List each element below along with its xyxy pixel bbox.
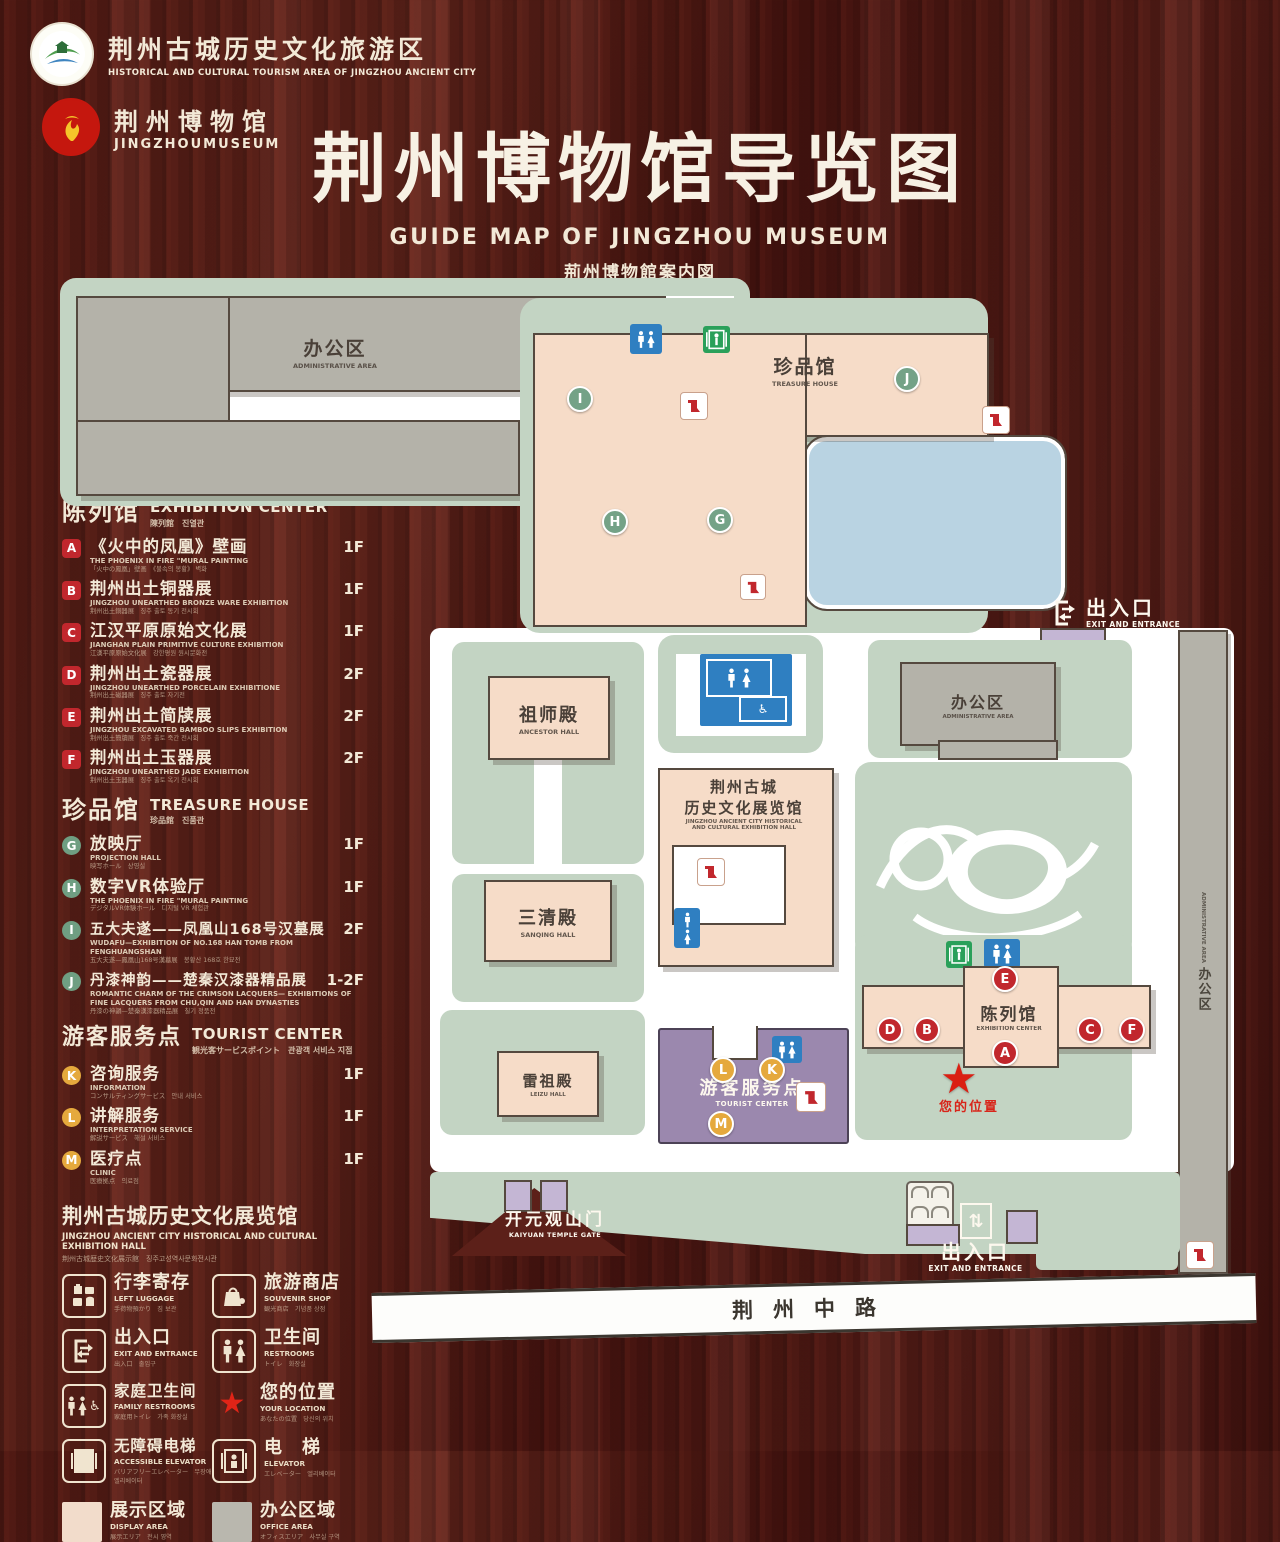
item-sub: デジタルVR体験ホール 디지털 VR 체험관	[90, 905, 364, 913]
admin-area-nw-label: 办公区 ADMINISTRATIVE AREA	[240, 334, 430, 370]
picto-zh: 办公区域	[260, 1502, 340, 1520]
item-zh: 荆州出土简牍展	[90, 707, 213, 724]
legend-item-body: 数字VR体验厅1F THE PHOENIX IN FIRE "MURAL PAI…	[90, 878, 364, 913]
picto-en: EXIT AND ENTRANCE	[114, 1349, 198, 1358]
legend-hall-heading: 荆州古城历史文化展览馆 JINGZHOU ANCIENT CITY HISTOR…	[62, 1199, 364, 1264]
picto-text: 行李寄存 LEFT LUGGAGE 手荷物預かり 짐 보관	[114, 1274, 190, 1313]
page-title: 荆州博物馆导览图	[250, 108, 1030, 217]
elevator-icon-treasure	[703, 326, 730, 353]
section-title-zh: 游客服务点	[62, 1027, 182, 1049]
item-en: THE PHOENIX IN FIRE "MURAL PAINTING	[90, 557, 364, 566]
picto-sub: 観光商店 기념품 상점	[264, 1304, 340, 1313]
garden-art	[855, 762, 1132, 958]
legend-item-body: 讲解服务1F INTERPRETATION SERVICE 解説サービス 해설 …	[90, 1107, 364, 1142]
picto-zh: 电 梯	[264, 1439, 336, 1457]
label-en: ANCESTOR HALL	[519, 728, 579, 736]
item-zh: 丹漆神韵——楚秦汉漆器精品展	[90, 974, 307, 989]
legend-item-j: J 丹漆神韵——楚秦汉漆器精品展1-2F ROMANTIC CHARM OF T…	[62, 971, 364, 1015]
picto-zh: 出入口	[114, 1329, 198, 1347]
legend-item-body: 江汉平原原始文化展1F JIANGHAN PLAIN PRIMITIVE CUL…	[90, 622, 364, 657]
location-star-icon: ★	[212, 1384, 252, 1424]
restroom-icon-exhibition-hall	[674, 908, 700, 948]
path-vertical-1	[534, 753, 562, 878]
picto-en: SOUVENIR SHOP	[264, 1294, 340, 1303]
item-zh: 数字VR体验厅	[90, 878, 205, 895]
arch-shape	[931, 1186, 949, 1198]
tourism-logo-text: 荆州古城历史文化旅游区 HISTORICAL AND CULTURAL TOUR…	[108, 30, 476, 78]
item-sub: 解説サービス 해설 서비스	[90, 1135, 364, 1143]
legend-item-body: 荆州出土玉器展2F JINGZHOU UNEARTHED JADE EXHIBI…	[90, 749, 364, 784]
item-floor: 1F	[337, 878, 364, 896]
picto-accessible-elevator: ♿ 无障碍电梯 ACCESSIBLE ELEVATOR バリアフリーエレベーター…	[62, 1439, 212, 1485]
item-zh: 《火中的凤凰》壁画	[90, 538, 248, 555]
admin-building-e: 办公区 ADMINISTRATIVE AREA	[900, 662, 1056, 746]
label-zh1: 荆州古城	[664, 776, 824, 797]
item-zh: 五大夫遂——凤凰山168号汉墓展	[90, 923, 325, 938]
picto-en: ACCESSIBLE ELEVATOR	[114, 1457, 212, 1466]
your-location-star: ★	[940, 1058, 978, 1100]
picto-text: 卫生间 RESTROOMS トイレ 화장실	[264, 1329, 321, 1368]
badge-l: L	[62, 1108, 81, 1127]
legend-item-d: D 荆州出土瓷器展2F JINGZHOU UNEARTHED PORCELAIN…	[62, 665, 364, 700]
arch-shape	[911, 1206, 929, 1218]
escalator-icon-se	[1186, 1241, 1214, 1269]
picto-zh: 您的位置	[260, 1384, 336, 1402]
item-sub: 医療拠点 의료점	[90, 1178, 364, 1186]
map-marker-c: C	[1077, 1017, 1103, 1043]
picto-zh: 卫生间	[264, 1329, 321, 1347]
label-zh2: 历史文化展览馆	[664, 797, 824, 818]
label-en: ADMINISTRATIVE AREA	[942, 714, 1013, 720]
item-zh: 荆州出土玉器展	[90, 749, 213, 766]
section-title-zh: 珍品馆	[62, 798, 140, 822]
picto-en: RESTROOMS	[264, 1349, 321, 1358]
badge-e: E	[62, 708, 81, 727]
item-sub: 「火中の鳳凰」壁画 《불속의 봉황》 벽화	[90, 566, 364, 574]
hall-heading-en: JINGZHOU ANCIENT CITY HISTORICAL AND CUL…	[62, 1232, 364, 1252]
legend-item-e: E 荆州出土简牍展2F JINGZHOU EXCAVATED BAMBOO SL…	[62, 707, 364, 742]
legend-item-h: H 数字VR体验厅1F THE PHOENIX IN FIRE "MURAL P…	[62, 878, 364, 913]
treasure-house-label: 珍品馆 TREASURE HOUSE	[745, 352, 865, 388]
picto-display-area: 展示区域 DISPLAY AREA 展示エリア 전시 영역	[62, 1502, 212, 1542]
item-sub: 映写ホール 상영실	[90, 863, 364, 871]
tourism-logo-title: 荆州古城历史文化旅游区	[108, 30, 476, 66]
legend-item-body: 荆州出土瓷器展2F JINGZHOU UNEARTHED PORCELAIN E…	[90, 665, 364, 700]
item-sub: 五大夫遂—鳳凰山168号漢墓展 봉황산 168호 한묘전	[90, 957, 364, 965]
tourism-area-logo-row: 荆州古城历史文化旅游区 HISTORICAL AND CULTURAL TOUR…	[30, 22, 476, 86]
badge-c: C	[62, 623, 81, 642]
picto-your-location: ★ 您的位置 YOUR LOCATION あなたの位置 당신의 위치	[212, 1384, 364, 1428]
label-en: LEIZU HALL	[530, 1092, 566, 1098]
section-title-en: TOURIST CENTER	[192, 1027, 352, 1043]
tourism-logo-subtitle: HISTORICAL AND CULTURAL TOURISM AREA OF …	[108, 68, 476, 78]
picto-souvenir-shop: 旅游商店 SOUVENIR SHOP 観光商店 기념품 상점	[212, 1274, 364, 1318]
picto-zh: 旅游商店	[264, 1274, 340, 1292]
item-floor: 1-2F	[321, 971, 364, 989]
picto-elevator: 电 梯 ELEVATOR エレベーター 엘리베이터	[212, 1439, 364, 1485]
legend-item-i: I 五大夫遂——凤凰山168号汉墓展2F WUDAFU—EXHIBITION O…	[62, 920, 364, 964]
picto-text: 旅游商店 SOUVENIR SHOP 観光商店 기념품 상점	[264, 1274, 340, 1313]
label-en: EXIT AND ENTRANCE	[908, 1264, 1043, 1273]
picto-sub: バリアフリーエレベーター 무장애 엘리베이터	[114, 1467, 212, 1485]
picto-text: 展示区域 DISPLAY AREA 展示エリア 전시 영역	[110, 1502, 186, 1541]
legend-item-body: 荆州出土简牍展2F JINGZHOU EXCAVATED BAMBOO SLIP…	[90, 707, 364, 742]
map-marker-k: K	[759, 1057, 785, 1083]
item-floor: 2F	[337, 749, 364, 767]
map-marker-i: I	[567, 386, 593, 412]
picto-text: 无障碍电梯 ACCESSIBLE ELEVATOR バリアフリーエレベーター 무…	[114, 1439, 212, 1485]
arch-shape	[911, 1186, 929, 1198]
picto-sub: 家庭用トイレ 가족 화장실	[114, 1412, 197, 1421]
escalator-icon-treasure-south	[740, 574, 766, 600]
picto-sub: トイレ 화장실	[264, 1359, 321, 1368]
label-en: SANQING HALL	[521, 931, 576, 939]
label-zh: 出入口	[1086, 598, 1206, 618]
leizu-hall-building: 雷祖殿 LEIZU HALL	[497, 1051, 599, 1117]
picto-left-luggage: 行李寄存 LEFT LUGGAGE 手荷物預かり 짐 보관	[62, 1274, 212, 1318]
exit-icon	[62, 1329, 106, 1373]
picto-text: 电 梯 ELEVATOR エレベーター 엘리베이터	[264, 1439, 336, 1478]
picto-zh: 展示区域	[110, 1502, 186, 1520]
map-marker-b: B	[914, 1017, 940, 1043]
legend-picto-grid: 行李寄存 LEFT LUGGAGE 手荷物預かり 짐 보관 旅游商店 SOUVE…	[62, 1274, 364, 1542]
picto-restrooms: 卫生间 RESTROOMS トイレ 화장실	[212, 1329, 364, 1373]
picto-zh: 家庭卫生间	[114, 1384, 197, 1400]
gate-block-s4	[1006, 1210, 1038, 1244]
label-zh: 雷祖殿	[522, 1070, 573, 1091]
picto-sub: エレベーター 엘리베이터	[264, 1469, 336, 1478]
family-restroom-icon: ♿	[62, 1384, 106, 1428]
picto-zh: 行李寄存	[114, 1274, 190, 1292]
display-area-swatch	[62, 1502, 102, 1542]
exhibition-center-label: 陈列馆 EXHIBITION CENTER	[949, 1000, 1069, 1032]
accessible-restroom-box: ♿	[739, 696, 787, 722]
badge-d: D	[62, 666, 81, 685]
restroom-inner-box	[706, 659, 772, 697]
map-marker-e: E	[992, 966, 1018, 992]
museum-logo-art	[51, 107, 91, 147]
jingzhou-middle-road: 荆州中路	[372, 1273, 1257, 1343]
label-en: TREASURE HOUSE	[745, 380, 865, 388]
wheelchair-glyph: ♿	[79, 1454, 90, 1468]
item-zh: 江汉平原原始文化展	[90, 622, 248, 639]
road-label: 荆州中路	[732, 1291, 897, 1325]
escalator-icon-treasure-center	[680, 392, 708, 420]
admin-building-bottom-wing	[76, 420, 520, 496]
legend-item-g: G 放映厅1F PROJECTION HALL 映写ホール 상영실	[62, 835, 364, 870]
badge-a: A	[62, 539, 81, 558]
item-floor: 1F	[337, 835, 364, 853]
escalator-icon-tourist-center	[796, 1082, 826, 1112]
hall-heading-sub: 荆州古城歴史文化展示館 징주고성역사문화전시관	[62, 1254, 364, 1264]
item-sub: 丹漆の神韻—楚秦漢漆器精品展 칠기 정품전	[90, 1008, 364, 1016]
item-floor: 1F	[337, 1150, 364, 1168]
label-zh: 珍品馆	[745, 352, 865, 379]
item-floor: 2F	[337, 920, 364, 938]
item-en: INFORMATION	[90, 1084, 364, 1093]
item-floor: 2F	[337, 707, 364, 725]
item-sub: 荆州出土磁器展 징주 출토 자기전	[90, 692, 364, 700]
picto-text: 您的位置 YOUR LOCATION あなたの位置 당신의 위치	[260, 1384, 336, 1423]
badge-b: B	[62, 581, 81, 600]
badge-i: I	[62, 921, 81, 940]
badge-g: G	[62, 836, 81, 855]
label-en: ADMINISTRATIVE AREA	[1200, 892, 1206, 963]
escalator-icon-treasure-east	[982, 406, 1010, 434]
picto-sub: 手荷物預かり 짐 보관	[114, 1304, 190, 1313]
legend-item-body: 放映厅1F PROJECTION HALL 映写ホール 상영실	[90, 835, 364, 870]
item-floor: 1F	[337, 1107, 364, 1125]
legend-item-b: B 荆州出土铜器展1F JINGZHOU UNEARTHED BRONZE WA…	[62, 580, 364, 615]
item-en: PROJECTION HALL	[90, 854, 364, 863]
item-zh: 放映厅	[90, 835, 143, 852]
page-title-en: GUIDE MAP OF JINGZHOU MUSEUM	[250, 225, 1030, 250]
exit-ne-label: 出入口 EXIT AND ENTRANCE	[1086, 598, 1206, 629]
jingzhou-museum-guide-map: { "header": { "logo1": {"title": "荆州古城历史…	[0, 0, 1280, 1451]
item-sub: コンサルティングサービス 안내 서비스	[90, 1093, 364, 1101]
picto-sub: オフィスエリア 사무실 구역	[260, 1532, 340, 1541]
picto-en: YOUR LOCATION	[260, 1404, 336, 1413]
map-marker-j: J	[894, 366, 920, 392]
elevator-icon	[212, 1439, 256, 1483]
pond	[805, 437, 1065, 609]
label-zh: 三清殿	[518, 904, 578, 930]
office-area-swatch	[212, 1502, 252, 1542]
section-title-sub: 陳列館 진열관	[150, 518, 328, 529]
picto-sub: あなたの位置 당신의 위치	[260, 1414, 336, 1423]
legend-section-treasure-house: 珍品馆 TREASURE HOUSE 珍品館 진품관	[62, 798, 364, 827]
label-en: KAIYUAN TEMPLE GATE	[480, 1231, 630, 1239]
south-grounds-east	[1036, 1178, 1178, 1270]
tourist-center-notch	[712, 1026, 758, 1060]
legend-item-m: M 医疗点1F CLINIC 医療拠点 의료점	[62, 1150, 364, 1185]
legend-item-f: F 荆州出土玉器展2F JINGZHOU UNEARTHED JADE EXHI…	[62, 749, 364, 784]
ancient-city-exhibition-hall-label: 荆州古城 历史文化展览馆 JINGZHOU ANCIENT CITY HISTO…	[664, 776, 824, 831]
kaiyuan-gate-label: 开元观山门 KAIYUAN TEMPLE GATE	[480, 1212, 630, 1239]
item-floor: 2F	[337, 665, 364, 683]
star-glyph: ★	[219, 1389, 246, 1419]
exit-s-icon: ⇅	[960, 1203, 992, 1239]
map-marker-h: H	[602, 509, 628, 535]
map-marker-f: F	[1119, 1017, 1145, 1043]
badge-k: K	[62, 1066, 81, 1085]
label-zh: 祖师殿	[519, 701, 579, 727]
item-en: JIANGHAN PLAIN PRIMITIVE CULTURE EXHIBIT…	[90, 641, 364, 650]
map-marker-d: D	[877, 1017, 903, 1043]
item-sub: 江漢平原原始文化展 강한평원 원시문화전	[90, 650, 364, 658]
picto-sub: 展示エリア 전시 영역	[110, 1532, 186, 1541]
picto-en: DISPLAY AREA	[110, 1522, 186, 1531]
arch-shape	[931, 1206, 949, 1218]
picto-exit-entrance: 出入口 EXIT AND ENTRANCE 出入口 출입구	[62, 1329, 212, 1373]
badge-j: J	[62, 972, 81, 991]
section-title-side: TREASURE HOUSE 珍品館 진품관	[150, 798, 309, 827]
label-zh: 出入口	[908, 1242, 1043, 1262]
picto-office-area: 办公区域 OFFICE AREA オフィスエリア 사무실 구역	[212, 1502, 364, 1542]
picto-en: ELEVATOR	[264, 1459, 336, 1468]
item-en: WUDAFU—EXHIBITION OF NO.168 HAN TOMB FRO…	[90, 939, 364, 957]
ancestor-hall-building: 祖师殿 ANCESTOR HALL	[488, 676, 610, 760]
item-floor: 1F	[337, 1065, 364, 1083]
your-location-label: 您的位置	[914, 1096, 1024, 1115]
escalator-icon-exhibition-hall	[697, 858, 725, 886]
item-zh: 荆州出土铜器展	[90, 580, 213, 597]
museum-logo-icon	[42, 98, 100, 156]
restroom-icon	[212, 1329, 256, 1373]
updown-arrows-glyph: ⇅	[968, 1211, 983, 1232]
wheelchair-glyph: ♿	[758, 702, 769, 716]
badge-m: M	[62, 1151, 81, 1170]
section-title-sub: 観光客サービスポイント 관광객 서비스 지점	[192, 1045, 352, 1056]
picto-family-restrooms: ♿ 家庭卫生间 FAMILY RESTROOMS 家庭用トイレ 가족 화장실	[62, 1384, 212, 1428]
luggage-icon	[62, 1274, 106, 1318]
item-sub: 荆州出土玉器展 징주 출토 옥기 전시회	[90, 777, 364, 785]
label-en2: AND CULTURAL EXHIBITION HALL	[664, 825, 824, 831]
map-marker-l: L	[710, 1057, 736, 1083]
label-en: EXHIBITION CENTER	[949, 1026, 1069, 1032]
picto-sub: 出入口 출입구	[114, 1359, 198, 1368]
exit-ne-icon	[1052, 600, 1082, 628]
legend-item-c: C 江汉平原原始文化展1F JIANGHAN PLAIN PRIMITIVE C…	[62, 622, 364, 657]
item-en: INTERPRETATION SERVICE	[90, 1126, 364, 1135]
label-zh: 办公区	[1194, 967, 1213, 1012]
label-zh: 办公区	[951, 689, 1005, 713]
item-sub: 荆州出土簡牘展 징주 출토 죽간 전시회	[90, 735, 364, 743]
tourism-logo-art	[37, 29, 87, 79]
legend-item-body: 荆州出土铜器展1F JINGZHOU UNEARTHED BRONZE WARE…	[90, 580, 364, 615]
picto-zh: 无障碍电梯	[114, 1439, 212, 1455]
elevator-icon-exhibition-center	[946, 941, 972, 968]
item-zh: 讲解服务	[90, 1107, 160, 1124]
legend-panel: 陈列馆 EXHIBITION CENTER 陳列館 진열관 A 《火中的凤凰》壁…	[62, 500, 364, 1542]
hall-heading-zh: 荆州古城历史文化展览馆	[62, 1199, 364, 1229]
legend-item-body: 咨询服务1F INFORMATION コンサルティングサービス 안내 서비스	[90, 1065, 364, 1100]
legend-item-k: K 咨询服务1F INFORMATION コンサルティングサービス 안내 서비스	[62, 1065, 364, 1100]
section-title-en: TREASURE HOUSE	[150, 798, 309, 814]
item-floor: 1F	[337, 580, 364, 598]
admin-strip-building: ADMINISTRATIVE AREA 办公区	[1178, 630, 1228, 1274]
garden	[855, 762, 1132, 958]
label-zh: 办公区	[240, 334, 430, 361]
legend-item-l: L 讲解服务1F INTERPRETATION SERVICE 解説サービス 해…	[62, 1107, 364, 1142]
map-marker-a: A	[992, 1040, 1018, 1066]
picto-text: 办公区域 OFFICE AREA オフィスエリア 사무실 구역	[260, 1502, 340, 1541]
item-floor: 1F	[337, 538, 364, 556]
map-marker-m: M	[708, 1111, 734, 1137]
picto-en: LEFT LUGGAGE	[114, 1294, 190, 1303]
section-title-side: TOURIST CENTER 観光客サービスポイント 관광객 서비스 지점	[192, 1027, 352, 1056]
label-zh: 陈列馆	[949, 1000, 1069, 1025]
item-en: ROMANTIC CHARM OF THE CRIMSON LACQUERS— …	[90, 990, 364, 1008]
section-title-sub: 珍品館 진품관	[150, 815, 309, 826]
item-en: JINGZHOU UNEARTHED JADE EXHIBITION	[90, 768, 364, 777]
legend-item-body: 医疗点1F CLINIC 医療拠点 의료점	[90, 1150, 364, 1185]
picto-text: 出入口 EXIT AND ENTRANCE 出入口 출입구	[114, 1329, 198, 1368]
shop-icon	[212, 1274, 256, 1318]
restroom-icon-treasure	[630, 324, 662, 354]
security-machine-icon	[906, 1181, 954, 1229]
item-floor: 1F	[337, 622, 364, 640]
family-restroom-block: ♿	[700, 654, 792, 726]
accessible-elevator-icon: ♿	[62, 1439, 106, 1483]
admin-building-e-stub	[938, 740, 1058, 760]
label-zh: 开元观山门	[480, 1212, 630, 1229]
badge-h: H	[62, 879, 81, 898]
picto-text: 家庭卫生间 FAMILY RESTROOMS 家庭用トイレ 가족 화장실	[114, 1384, 197, 1421]
legend-item-a: A 《火中的凤凰》壁画1F THE PHOENIX IN FIRE "MURAL…	[62, 538, 364, 573]
legend-item-body: 五大夫遂——凤凰山168号汉墓展2F WUDAFU—EXHIBITION OF …	[90, 920, 364, 964]
picto-en: FAMILY RESTROOMS	[114, 1402, 197, 1411]
item-en: JINGZHOU EXCAVATED BAMBOO SLIPS EXHIBITI…	[90, 726, 364, 735]
item-zh: 荆州出土瓷器展	[90, 665, 213, 682]
gate-block-s1	[504, 1180, 532, 1212]
badge-f: F	[62, 750, 81, 769]
picto-en: OFFICE AREA	[260, 1522, 340, 1531]
item-zh: 医疗点	[90, 1150, 143, 1167]
map-marker-g: G	[707, 507, 733, 533]
item-sub: 荆州出土銅器展 징주 출토 동기 전시회	[90, 608, 364, 616]
item-zh: 咨询服务	[90, 1065, 160, 1082]
legend-item-body: 《火中的凤凰》壁画1F THE PHOENIX IN FIRE "MURAL P…	[90, 538, 364, 573]
exit-s-label: 出入口 EXIT AND ENTRANCE	[908, 1242, 1043, 1273]
legend-item-body: 丹漆神韵——楚秦汉漆器精品展1-2F ROMANTIC CHARM OF THE…	[90, 971, 364, 1015]
item-en: CLINIC	[90, 1169, 364, 1178]
label-en: ADMINISTRATIVE AREA	[240, 362, 430, 370]
item-en: JINGZHOU UNEARTHED BRONZE WARE EXHIBITIO…	[90, 599, 364, 608]
tourism-area-logo-icon	[30, 22, 94, 86]
gate-block-s2	[540, 1180, 568, 1212]
legend-section-tourist-center: 游客服务点 TOURIST CENTER 観光客サービスポイント 관광객 서비스…	[62, 1027, 364, 1056]
wheelchair-glyph: ♿	[89, 1399, 101, 1414]
sanqing-hall-building: 三清殿 SANQING HALL	[484, 880, 612, 962]
restroom-icon-exhibition-center	[984, 939, 1020, 968]
